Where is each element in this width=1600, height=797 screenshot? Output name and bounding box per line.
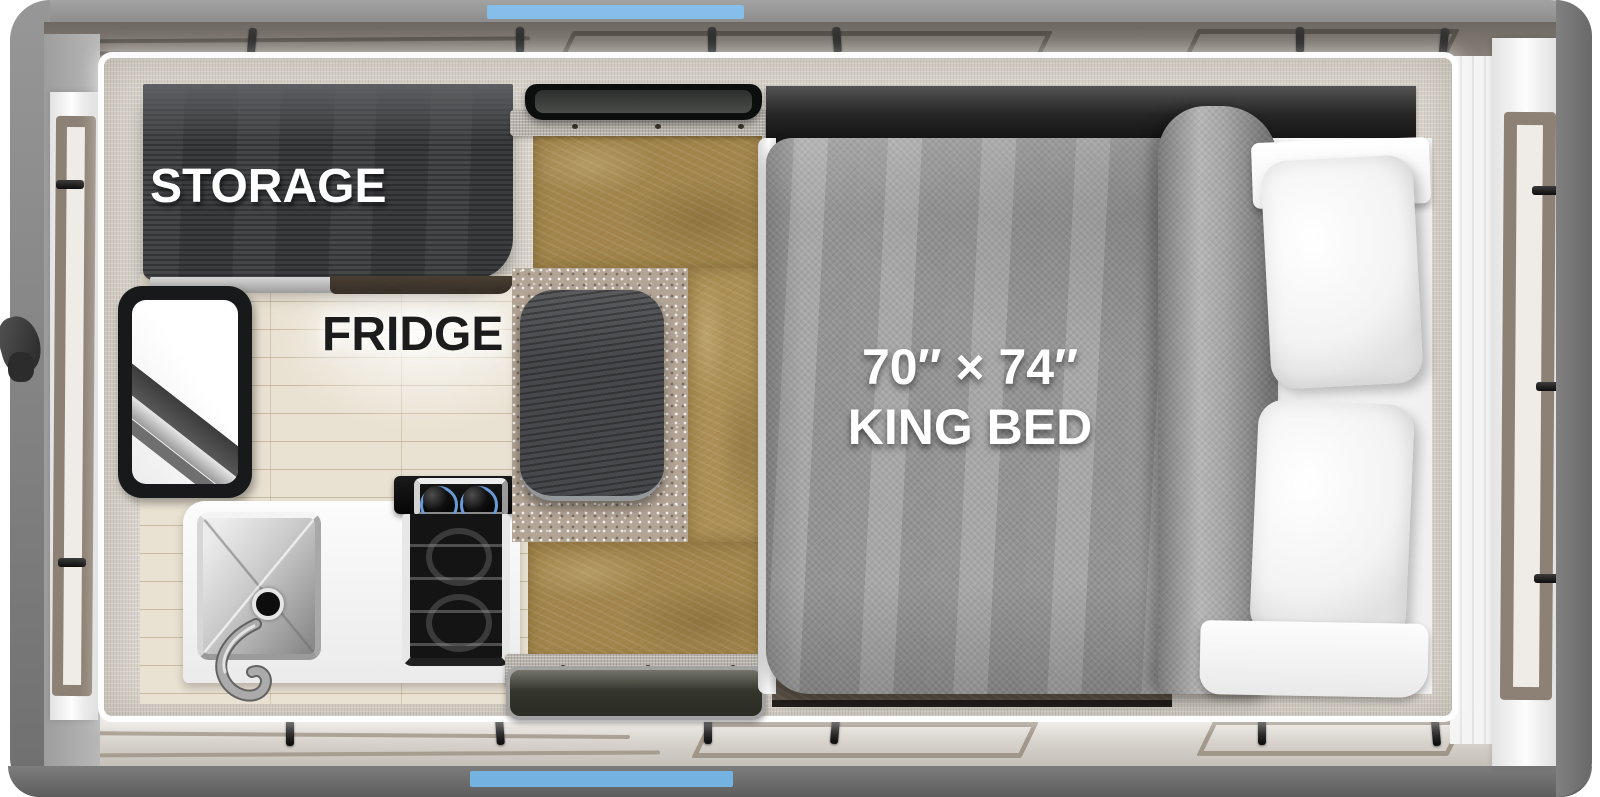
bed-label: 70″ × 74″ KING BED [790,337,1150,457]
bumper-bar [8,766,1592,797]
sheet-drape [1199,620,1428,698]
accent-strip-top [487,5,744,19]
awning-clip-icon [58,558,86,567]
right-wall [1556,0,1592,797]
oven-burner-icon [426,528,492,586]
storage-shelf-dark [330,276,513,294]
burner-knob-icon [463,486,489,512]
skirt-trim-rect [1196,720,1466,756]
storage-label: STORAGE [150,163,386,211]
skirt-trim-rect [691,722,1039,758]
awning-frame [1500,112,1556,700]
entry-mat [506,666,766,720]
snap-fastener-icon [738,124,744,129]
bed-size-label: 70″ × 74″ [790,337,1150,397]
entry-window [118,286,252,498]
right-awning-panel [1492,38,1566,766]
roof-vent [525,84,762,120]
door-handle-knob-icon [8,352,34,382]
dinette-bench-top [533,130,762,268]
dinette-table [520,290,664,501]
skirt-clip-icon [704,718,712,744]
burner-knob-icon [423,486,449,512]
snap-fastener-icon [655,124,661,129]
skirt-clip-icon [286,720,294,746]
roof-clip-icon [832,27,842,53]
window-glass [132,300,238,484]
oven-glass [402,514,510,666]
floorplan: STORAGE FRIDGE [0,0,1600,797]
right-sill [1450,56,1492,744]
skirt-clip-icon [1258,719,1266,745]
awning-clip-icon [56,180,84,189]
roof-trim-rect [1182,29,1460,61]
roof-clip-icon [516,27,524,53]
awning-frame [52,116,96,696]
accent-strip-bottom [470,771,733,787]
bed-name-label: KING BED [790,397,1150,457]
roof-clip-icon [1296,27,1304,53]
dinette-bench-bottom [528,542,762,664]
two-burner-stove [394,476,518,667]
pillow [1260,154,1424,390]
roof-vent-glass [535,90,752,113]
snap-fastener-icon [572,124,578,129]
skirt-clip-icon [495,719,505,745]
fridge-label: FRIDGE [322,311,503,359]
dinette-bench-right [688,268,762,542]
pillow [1249,399,1415,642]
roof-clip-icon [708,27,716,53]
faucet-icon [210,616,284,706]
left-awning-panel [50,92,98,720]
oven-burner-icon [426,594,492,652]
